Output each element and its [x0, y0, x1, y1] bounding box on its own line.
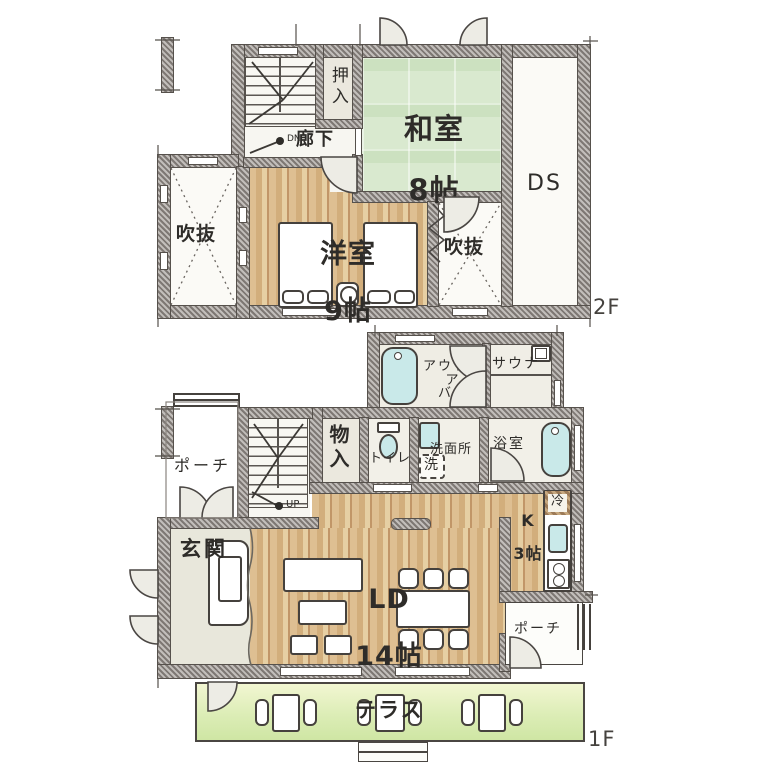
floor-label-1f: 1F — [588, 727, 615, 751]
wall — [410, 418, 418, 483]
terrace-chair — [461, 699, 475, 726]
casement-window-arc — [130, 616, 158, 644]
wall — [237, 167, 249, 318]
window — [188, 157, 218, 165]
wall — [578, 45, 590, 318]
tub-drain — [394, 352, 402, 360]
terrace-chair — [303, 699, 317, 726]
label-yokushitsu: 浴室 — [493, 437, 525, 452]
label-up: UP — [286, 500, 299, 511]
terrace-chair — [509, 699, 523, 726]
tub-drain — [551, 427, 559, 435]
label-fukinuke-left: 吹抜 — [176, 225, 216, 245]
label-terrace: テラス — [355, 699, 424, 721]
casement-window-arc — [130, 570, 158, 598]
label-toilet: トイレ — [369, 452, 411, 466]
window — [395, 335, 435, 342]
wall-stub — [392, 519, 430, 529]
kitchen-sink-icon — [548, 524, 568, 553]
window — [355, 128, 362, 156]
window — [452, 308, 488, 316]
label-dn: DN — [287, 135, 301, 144]
stairs-divider — [279, 57, 281, 112]
label-kitchen: K 3帖 — [510, 496, 546, 563]
wall — [310, 408, 322, 488]
door-opening — [373, 484, 412, 492]
label-ds: DS — [527, 172, 562, 195]
door-arc — [380, 18, 407, 45]
wall — [500, 518, 510, 592]
terrace-chair — [255, 699, 269, 726]
wall — [162, 518, 318, 528]
wall — [428, 202, 438, 306]
door-opening — [478, 484, 498, 492]
label-ld: LD 14帖 — [344, 558, 434, 671]
terrace-table — [272, 694, 300, 732]
label-washitsu: 和室 8帖 — [384, 84, 484, 206]
wall — [353, 45, 362, 125]
stove-burner — [553, 563, 565, 575]
shoe-cabinet-inner — [218, 556, 242, 602]
washitsu-size: 8帖 — [408, 173, 459, 207]
floor-plan-canvas: 和室 8帖 押入 廊下 DN DS 吹抜 吹抜 洋室 9帖 2F — [0, 0, 775, 775]
terrace-step-line — [358, 751, 428, 753]
wall-stub — [162, 38, 173, 92]
wall — [238, 408, 248, 518]
label-washer: 洗 — [424, 458, 438, 473]
window — [554, 380, 561, 406]
wall — [244, 158, 324, 167]
label-oshiire: 押入 — [328, 66, 346, 108]
kitchen-name: K — [521, 511, 534, 530]
toilet-tank — [377, 422, 400, 433]
wall — [368, 333, 379, 413]
wall — [232, 45, 244, 167]
wall — [353, 155, 362, 192]
label-senmenjo: 洗面所 — [430, 443, 472, 457]
label-monoire: 物入 — [327, 424, 348, 472]
floor-label-2f: 2F — [593, 295, 620, 319]
terrace-table — [478, 694, 506, 732]
coffee-table — [298, 600, 347, 625]
ld-size: 14帖 — [355, 641, 423, 672]
wall — [500, 592, 592, 602]
label-porch-right: ポーチ — [514, 622, 562, 637]
yoshitsu-size: 9帖 — [324, 296, 372, 327]
wall — [316, 45, 323, 125]
wall — [238, 408, 312, 418]
wall-stub — [162, 407, 173, 458]
wall — [158, 518, 170, 678]
wall — [480, 418, 488, 483]
window — [160, 252, 168, 270]
window — [160, 185, 168, 203]
label-genkan: 玄関 — [180, 538, 228, 560]
label-sauna: サウナ — [492, 357, 540, 372]
window — [574, 425, 581, 471]
wall — [158, 155, 170, 318]
wall — [310, 408, 583, 418]
door-arc — [180, 487, 211, 518]
dining-chair — [448, 568, 469, 589]
window — [239, 207, 247, 223]
floor-cushion — [290, 635, 318, 655]
stove-burner — [553, 575, 565, 587]
label-rouka: 廊下 — [296, 131, 334, 150]
yoshitsu-name: 洋室 — [320, 239, 376, 270]
label-yoshitsu: 洋室 9帖 — [296, 213, 400, 326]
label-fridge: 冷 — [551, 495, 564, 509]
window — [574, 524, 581, 582]
kitchen-size: 3帖 — [513, 544, 542, 563]
porch-pergola-line — [173, 399, 240, 401]
window — [239, 250, 247, 266]
wall — [316, 120, 362, 128]
wall — [360, 418, 368, 483]
dining-chair — [448, 629, 469, 650]
stairs-divider — [277, 418, 279, 488]
window — [258, 47, 298, 55]
sauna-bench — [490, 374, 552, 376]
door-arc — [202, 487, 233, 518]
label-outdoor-bath: アウトドア バス — [418, 360, 488, 401]
wall — [502, 45, 512, 306]
washitsu-name: 和室 — [404, 112, 464, 146]
door-arc — [460, 18, 487, 45]
ld-name: LD — [368, 584, 410, 615]
label-porch-left: ポーチ — [174, 458, 231, 475]
label-fukinuke-right: 吹抜 — [444, 238, 484, 258]
